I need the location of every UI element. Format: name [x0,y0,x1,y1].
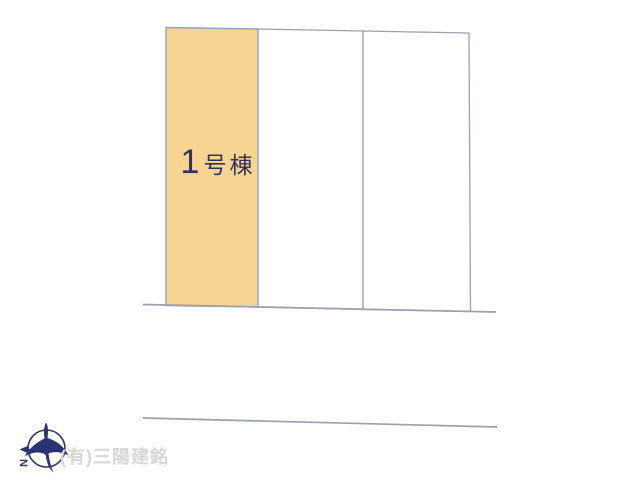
site-plan-image: N 1号棟 (有)三陽建銘 [0,0,640,480]
lot-1-area [166,28,258,308]
north-arrowhead-icon [20,446,28,453]
lot-2-area [258,29,363,310]
lot-3-area [363,31,471,312]
road-line [143,418,497,427]
compass-bird-icon [25,423,69,473]
compass-north-indicator: N [17,423,69,473]
north-label: N [17,459,29,467]
plan-drawing: N [0,0,640,480]
